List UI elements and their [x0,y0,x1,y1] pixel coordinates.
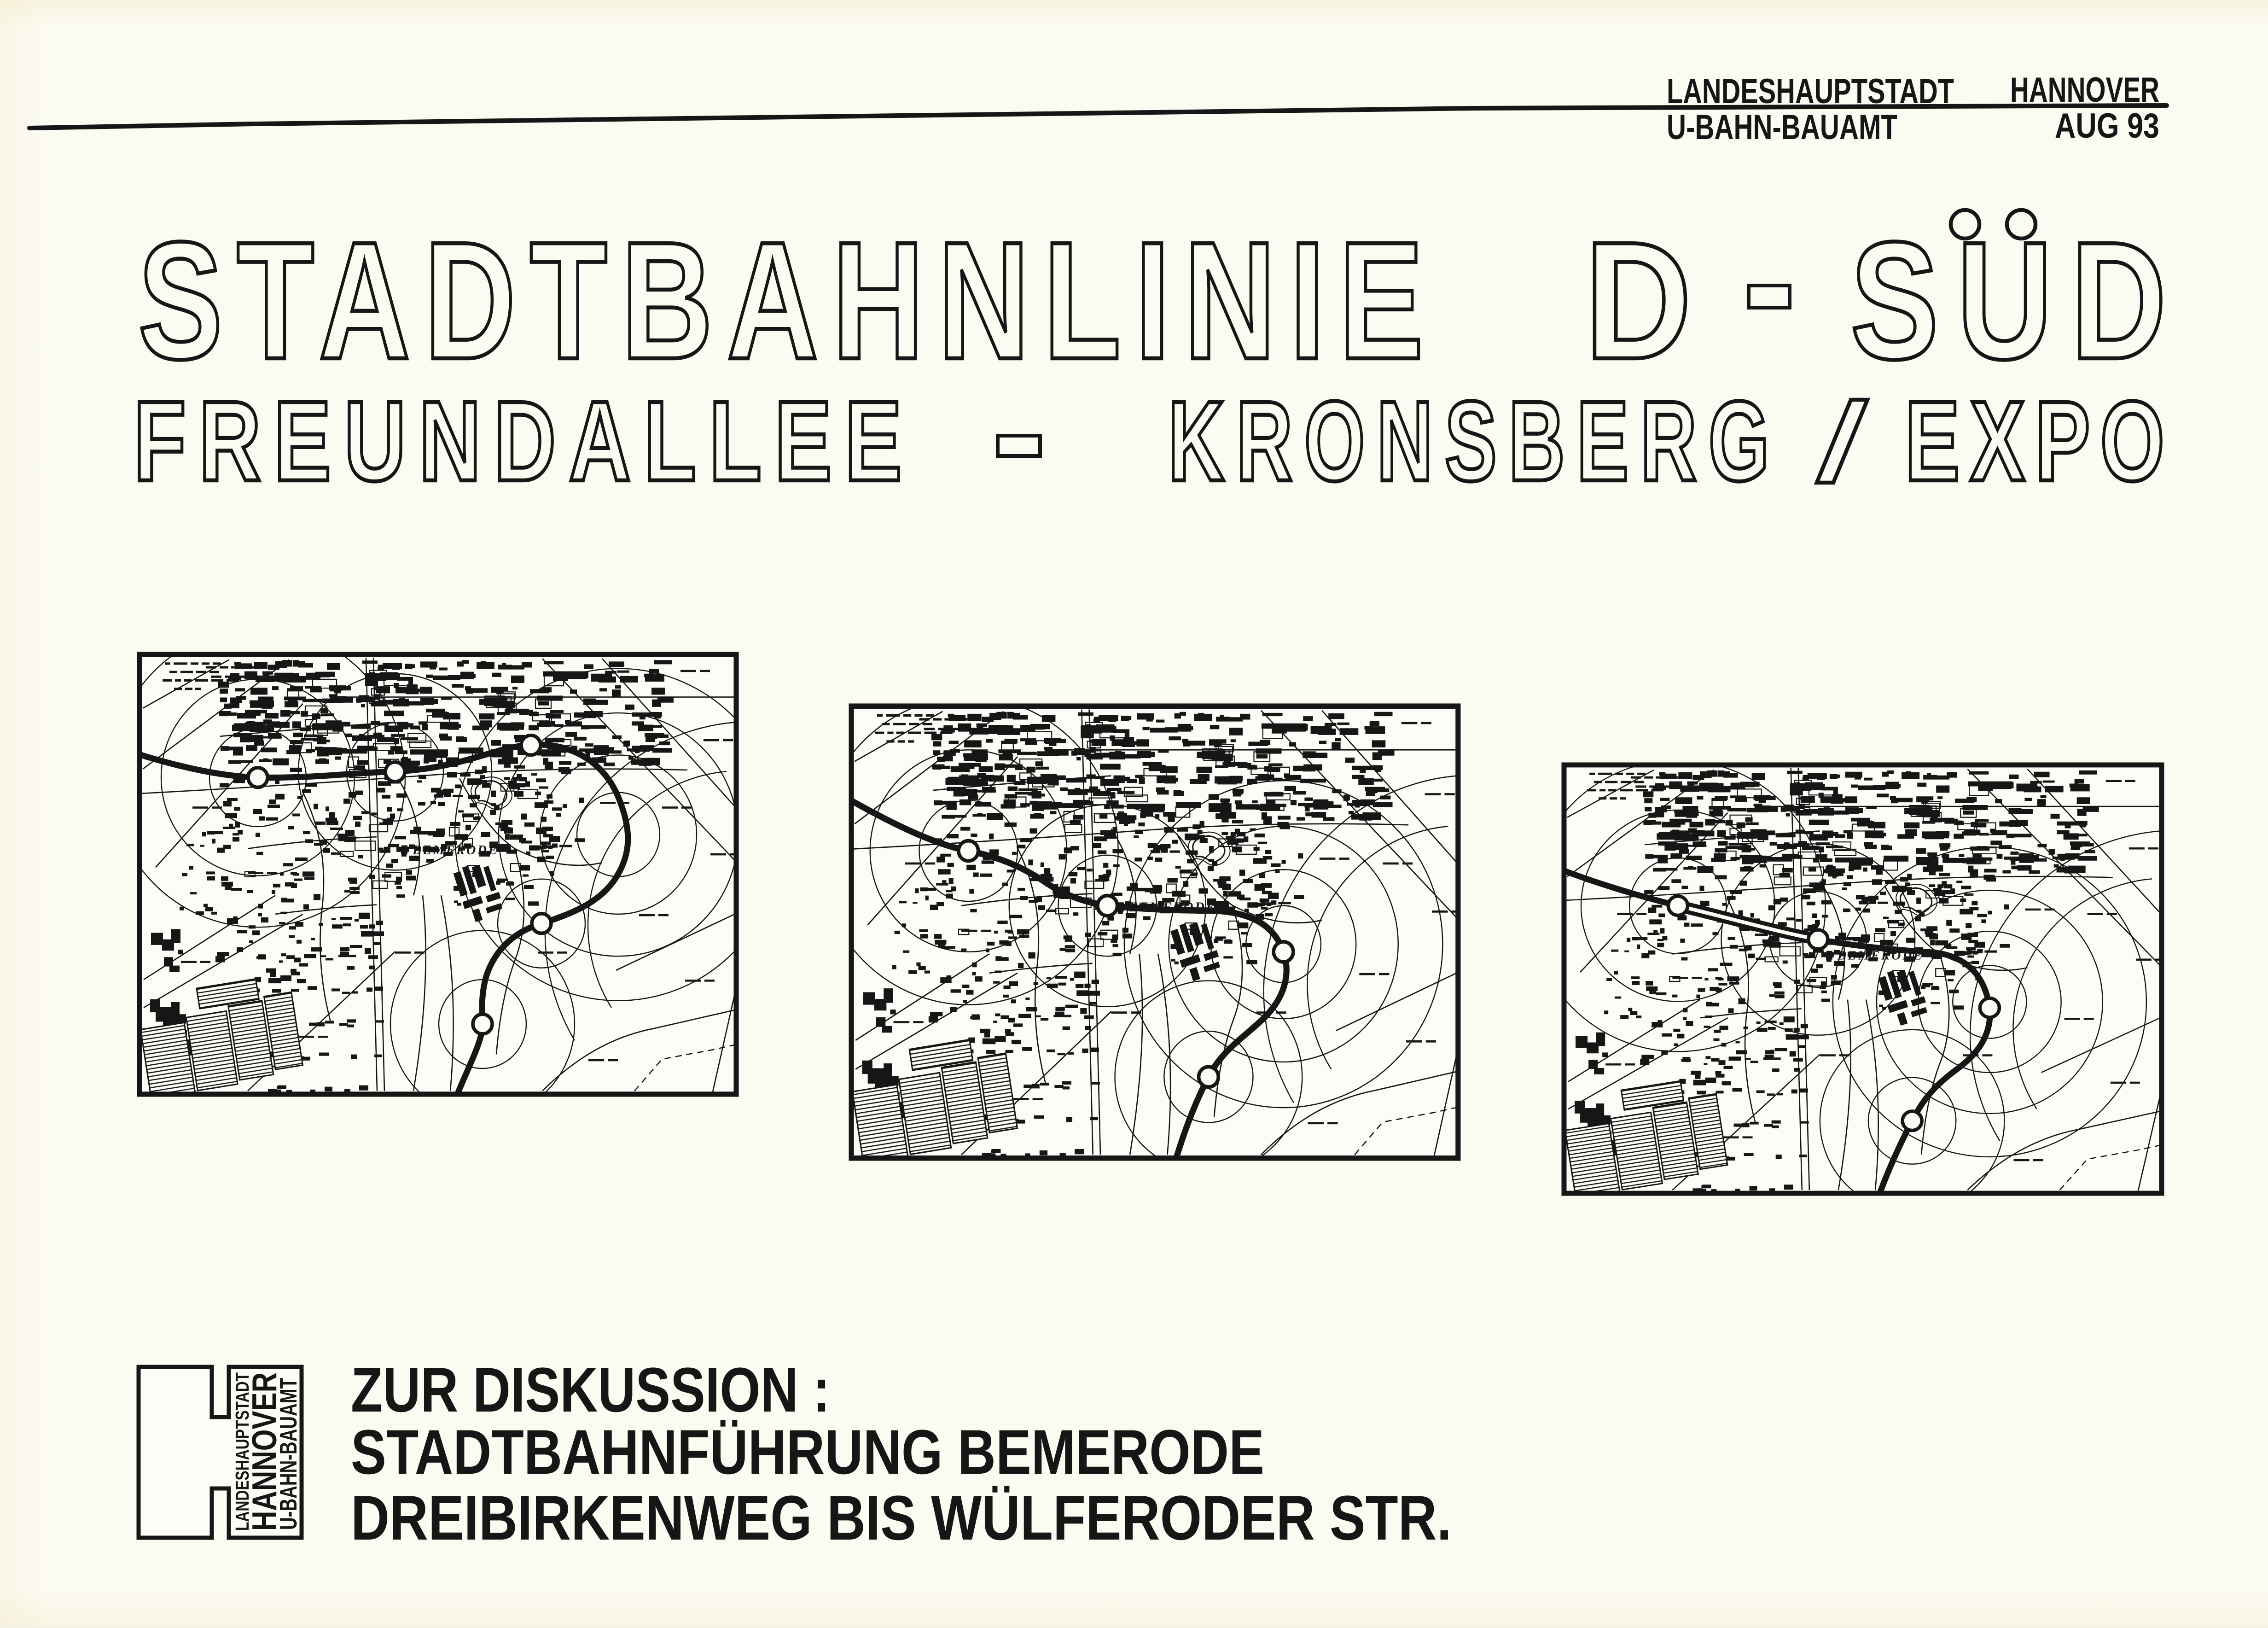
svg-text:DREIBIRKENWEG BIS WÜLFERODER S: DREIBIRKENWEG BIS WÜLFERODER STR. [351,1483,1452,1553]
svg-text:EXPO: EXPO [1905,378,2175,505]
svg-text:ZUR DISKUSSION :: ZUR DISKUSSION : [351,1355,830,1425]
svg-text:LANDESHAUPTSTADT: LANDESHAUPTSTADT [1667,72,1954,111]
svg-text:U-BAHN-BAUAMT: U-BAHN-BAUAMT [1667,108,1897,147]
svg-text:U-BAHN-BAUAMT: U-BAHN-BAUAMT [275,1378,302,1530]
svg-text:AUG 93: AUG 93 [2055,106,2159,146]
svg-text:STADTBAHNLINIE: STADTBAHNLINIE [138,207,1437,394]
svg-text:STADTBAHNFÜHRUNG BEMERODE: STADTBAHNFÜHRUNG BEMERODE [351,1417,1264,1488]
svg-text:SUD: SUD [1850,207,2185,394]
svg-text:HANNOVER: HANNOVER [2010,70,2159,110]
svg-text:FREUNDALLEE: FREUNDALLEE [134,378,915,505]
svg-text:D: D [1585,207,1692,394]
svg-text:KRONSBERG: KRONSBERG [1168,378,1781,505]
